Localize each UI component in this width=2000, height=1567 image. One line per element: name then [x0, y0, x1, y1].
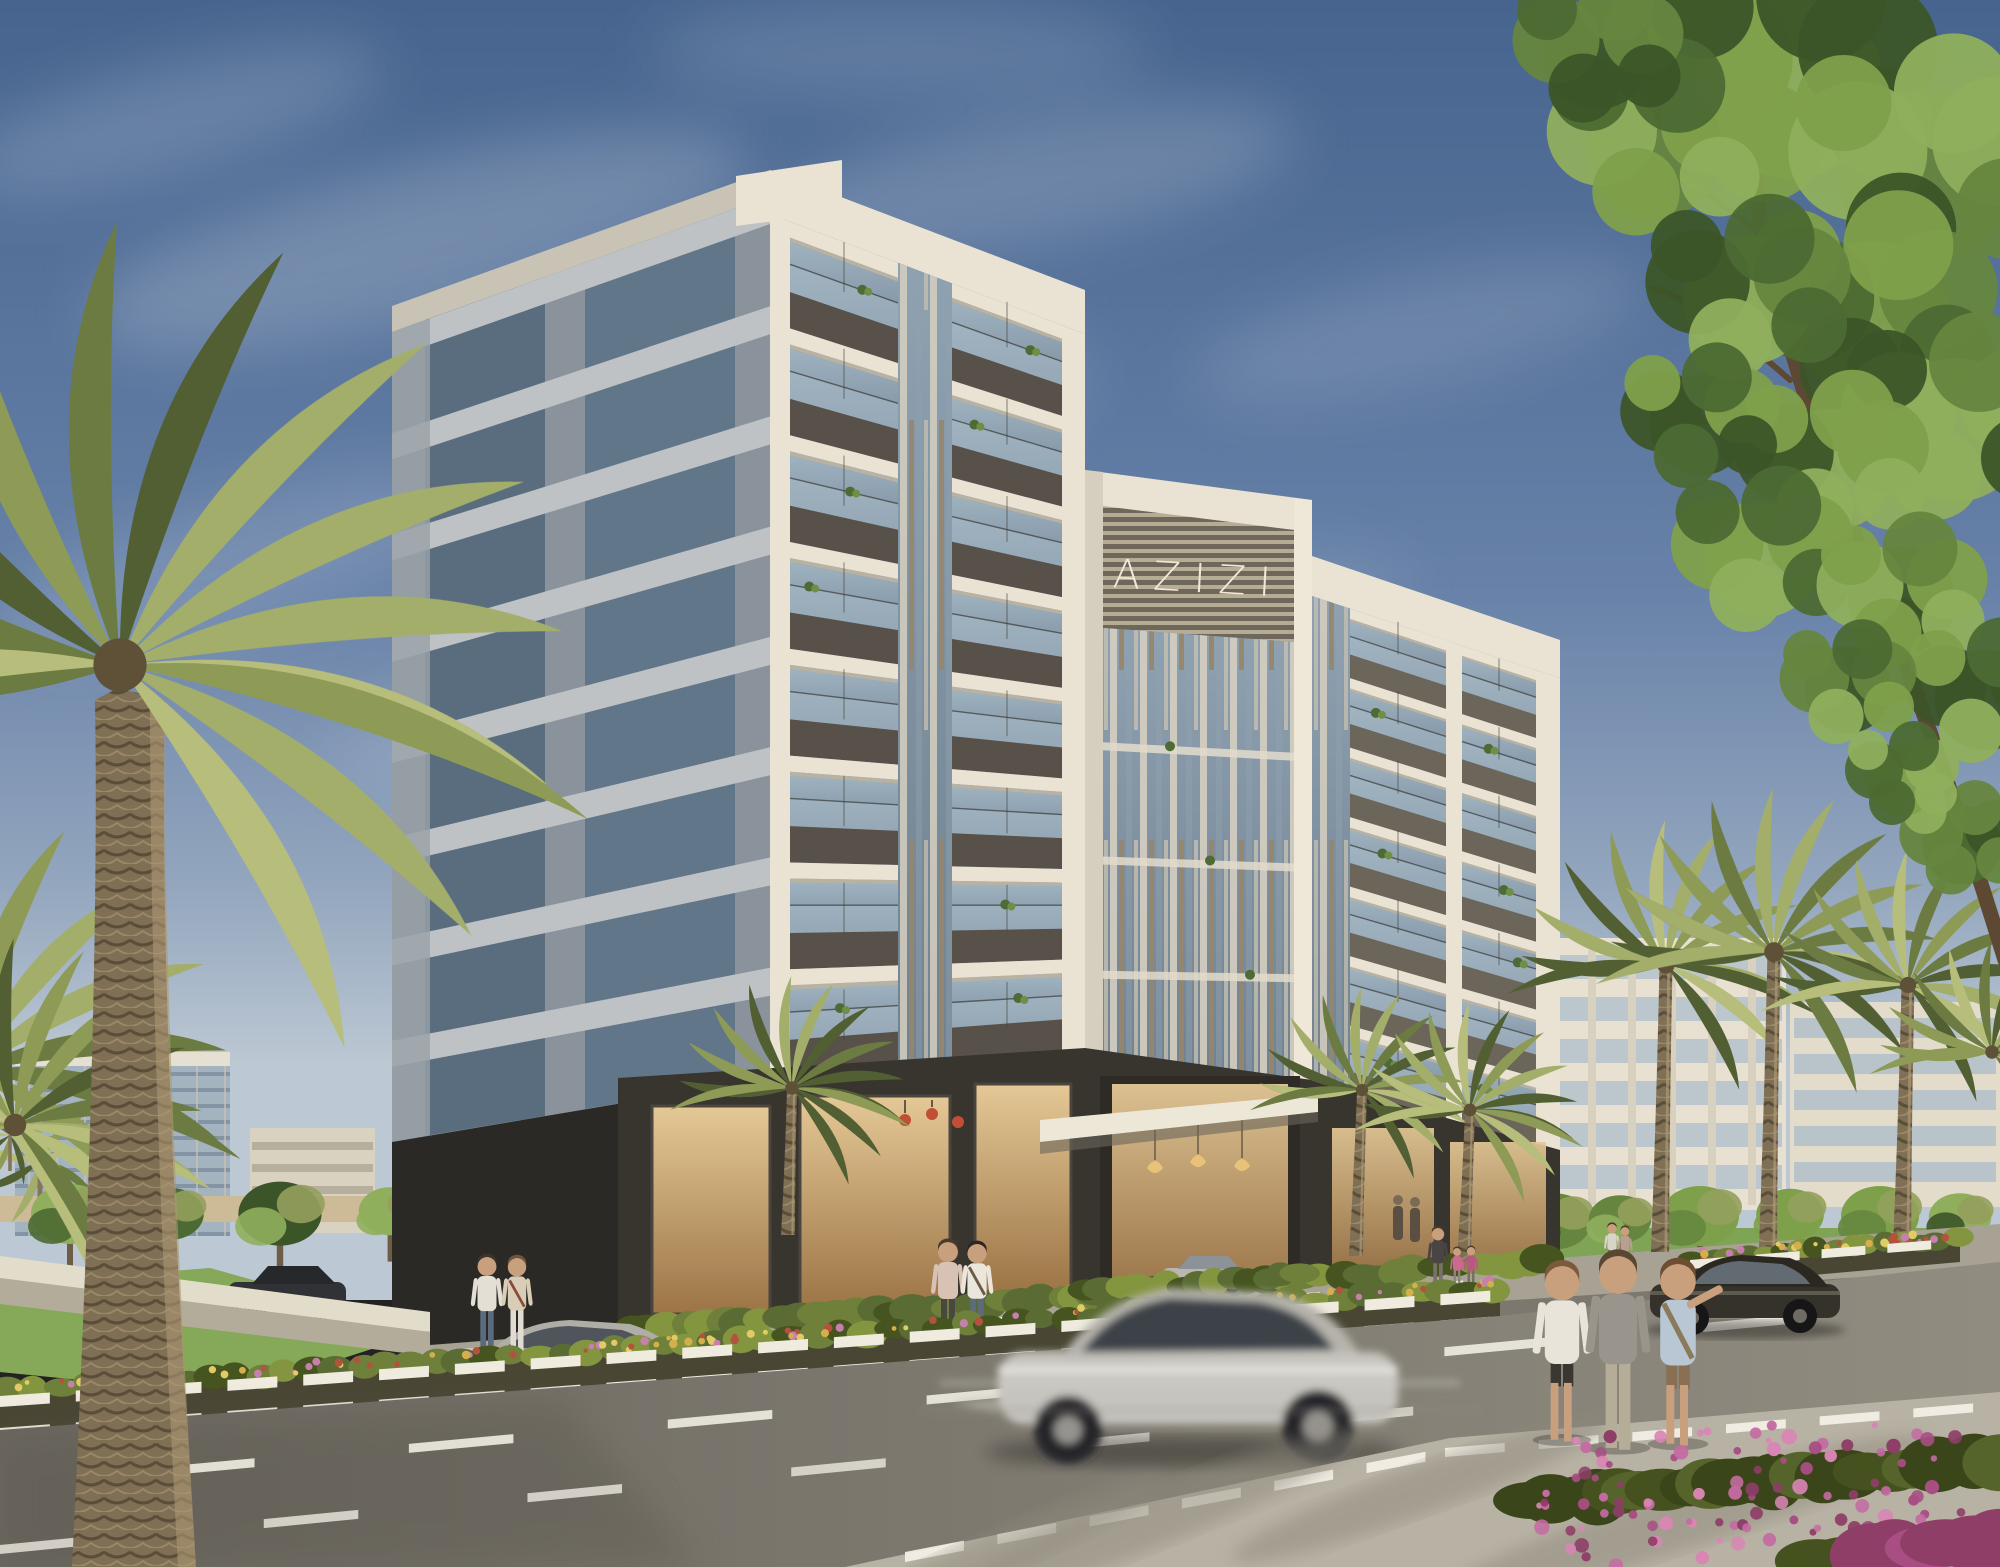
architectural-render: AZIZI [0, 0, 2000, 1567]
render-canvas: AZIZI [0, 0, 2000, 1567]
storefront-glass [975, 1084, 1071, 1294]
lantern [926, 1108, 938, 1120]
lantern [952, 1116, 964, 1128]
building-left-facade [392, 170, 770, 1168]
building-front-facade [736, 160, 1085, 1082]
storefront-figure [1410, 1208, 1420, 1242]
storefront-figure [1393, 1206, 1403, 1240]
azizi-sign-text: AZIZI [1112, 551, 1285, 606]
storefront-glass [652, 1106, 770, 1314]
